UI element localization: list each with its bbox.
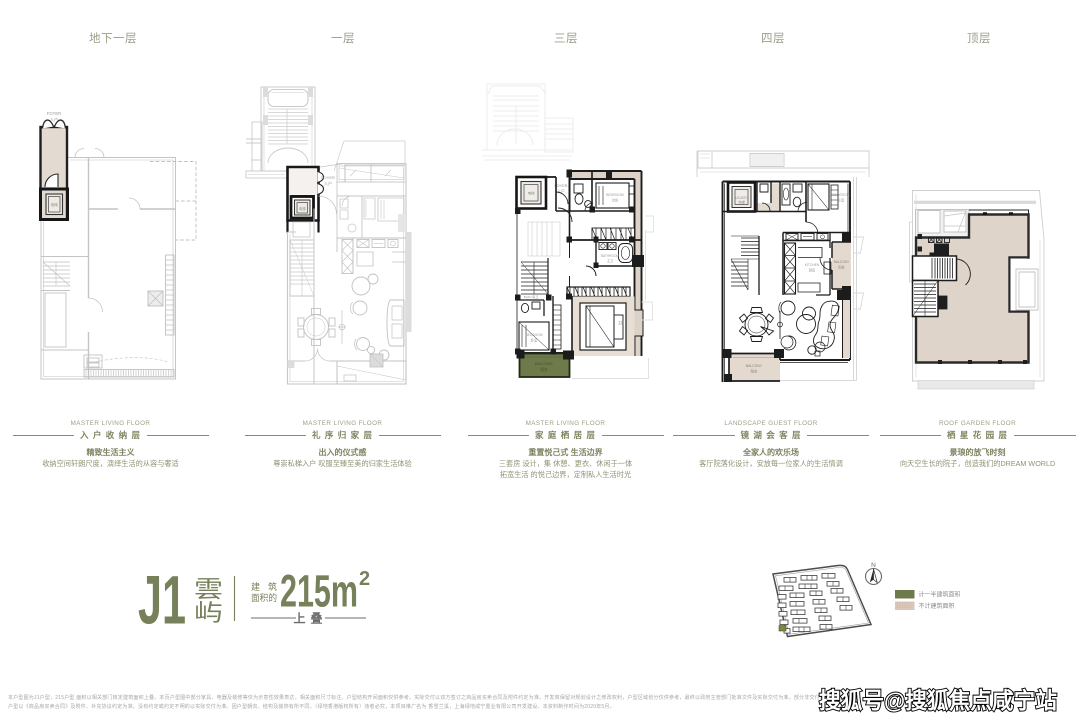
- svg-text:面积的: 面积的: [251, 592, 277, 603]
- svg-text:主卫: 主卫: [607, 258, 614, 263]
- svg-text:BEDROOM: BEDROOM: [606, 193, 624, 197]
- svg-text:电梯: 电梯: [299, 206, 306, 211]
- svg-text:KITCHEN: KITCHEN: [805, 263, 820, 267]
- svg-text:计一半建筑面积: 计一半建筑面积: [919, 591, 961, 599]
- svg-text:建筑: 建筑: [251, 581, 277, 592]
- svg-text:主卧: 主卧: [618, 320, 625, 325]
- svg-text:BATHROOM: BATHROOM: [601, 254, 620, 258]
- svg-text:入户: 入户: [324, 180, 332, 186]
- svg-text:阳台: 阳台: [540, 367, 548, 372]
- svg-text:BALCONY: BALCONY: [834, 260, 850, 264]
- svg-text:厨房: 厨房: [809, 268, 816, 273]
- svg-text:FOYER: FOYER: [321, 175, 335, 180]
- svg-text:电梯: 电梯: [51, 202, 59, 207]
- svg-text:上叠: 上叠: [293, 611, 327, 626]
- svg-text:BALCONY: BALCONY: [535, 362, 554, 366]
- svg-text:FOYER: FOYER: [47, 111, 61, 116]
- svg-text:阳台: 阳台: [838, 265, 844, 270]
- svg-text:搜狐号@搜狐焦点咸宁站: 搜狐号@搜狐焦点咸宁站: [819, 688, 1057, 714]
- svg-text:BEDROOM: BEDROOM: [525, 333, 542, 337]
- svg-text:屿: 屿: [194, 600, 223, 626]
- svg-text:2: 2: [359, 568, 370, 590]
- svg-text:N: N: [871, 562, 876, 569]
- svg-text:BATH 客卫: BATH 客卫: [524, 294, 539, 299]
- svg-text:J1: J1: [138, 562, 186, 639]
- svg-text:电梯: 电梯: [528, 191, 535, 196]
- svg-text:电梯: 电梯: [738, 200, 745, 205]
- svg-text:LEVATO: LEVATO: [735, 196, 748, 200]
- svg-text:BEDROOM: BEDROOM: [832, 193, 849, 197]
- svg-text:次卧: 次卧: [612, 198, 619, 203]
- svg-text:215m: 215m: [280, 566, 358, 617]
- svg-text:阳台: 阳台: [751, 369, 758, 374]
- svg-text:卧室: 卧室: [838, 198, 845, 203]
- svg-text:雲: 雲: [194, 576, 223, 602]
- svg-text:卧室: 卧室: [531, 338, 538, 343]
- svg-text:不计建筑面积: 不计建筑面积: [919, 602, 955, 610]
- svg-text:BALCONY: BALCONY: [746, 364, 763, 368]
